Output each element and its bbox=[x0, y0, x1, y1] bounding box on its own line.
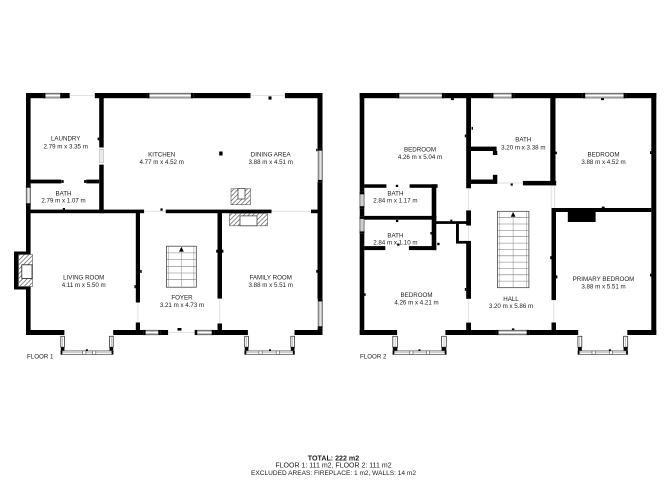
svg-text:KITCHEN: KITCHEN bbox=[148, 151, 175, 158]
svg-text:3.88 m x 4.51 m: 3.88 m x 4.51 m bbox=[249, 159, 293, 166]
svg-text:BEDROOM: BEDROOM bbox=[404, 146, 436, 153]
svg-text:3.20 m x 5.86 m: 3.20 m x 5.86 m bbox=[489, 303, 533, 310]
svg-text:BEDROOM: BEDROOM bbox=[588, 152, 620, 159]
svg-text:3.21 m x 4.73 m: 3.21 m x 4.73 m bbox=[160, 302, 204, 309]
svg-text:FAMILY ROOM: FAMILY ROOM bbox=[249, 274, 291, 281]
svg-text:BEDROOM: BEDROOM bbox=[401, 292, 433, 299]
svg-text:TOTAL: 222 m2: TOTAL: 222 m2 bbox=[308, 454, 359, 462]
svg-text:LIVING ROOM: LIVING ROOM bbox=[63, 274, 104, 281]
svg-text:FLOOR 2: FLOOR 2 bbox=[360, 354, 387, 361]
svg-text:2.79 m x 1.07 m: 2.79 m x 1.07 m bbox=[41, 197, 85, 204]
svg-text:3.88 m x 5.51 m: 3.88 m x 5.51 m bbox=[249, 282, 293, 289]
svg-text:FOYER: FOYER bbox=[171, 294, 193, 301]
svg-text:4.26 m x 5.04 m: 4.26 m x 5.04 m bbox=[398, 154, 442, 161]
svg-text:BATH: BATH bbox=[515, 137, 531, 144]
svg-text:HALL: HALL bbox=[503, 296, 519, 303]
svg-text:LAUNDRY: LAUNDRY bbox=[51, 136, 80, 143]
svg-text:2.84 m x 1.17 m: 2.84 m x 1.17 m bbox=[373, 197, 417, 204]
svg-text:DINING AREA: DINING AREA bbox=[251, 151, 292, 158]
svg-text:EXCLUDED AREAS: FIREPLACE: 1 m: EXCLUDED AREAS: FIREPLACE: 1 m2, WALLS: … bbox=[251, 470, 416, 477]
svg-text:3.88 m x 4.52 m: 3.88 m x 4.52 m bbox=[581, 159, 625, 166]
svg-text:3.20 m x 3.38 m: 3.20 m x 3.38 m bbox=[501, 145, 545, 152]
svg-text:2.84 m x 1.10 m: 2.84 m x 1.10 m bbox=[373, 239, 417, 246]
svg-text:FLOOR 1: FLOOR 1 bbox=[27, 354, 54, 361]
svg-text:4.26 m x 4.21 m: 4.26 m x 4.21 m bbox=[394, 300, 438, 307]
svg-text:4.11 m x 5.50 m: 4.11 m x 5.50 m bbox=[62, 282, 106, 289]
svg-text:2.79 m x 3.35 m: 2.79 m x 3.35 m bbox=[44, 144, 88, 151]
svg-text:3.88 m x 5.51 m: 3.88 m x 5.51 m bbox=[581, 283, 625, 290]
svg-text:FLOOR 1: 111 m2, FLOOR 2: 111: FLOOR 1: 111 m2, FLOOR 2: 111 m2 bbox=[275, 463, 391, 470]
svg-text:4.77 m x 4.52 m: 4.77 m x 4.52 m bbox=[140, 159, 184, 166]
svg-text:PRIMARY BEDROOM: PRIMARY BEDROOM bbox=[573, 276, 635, 283]
